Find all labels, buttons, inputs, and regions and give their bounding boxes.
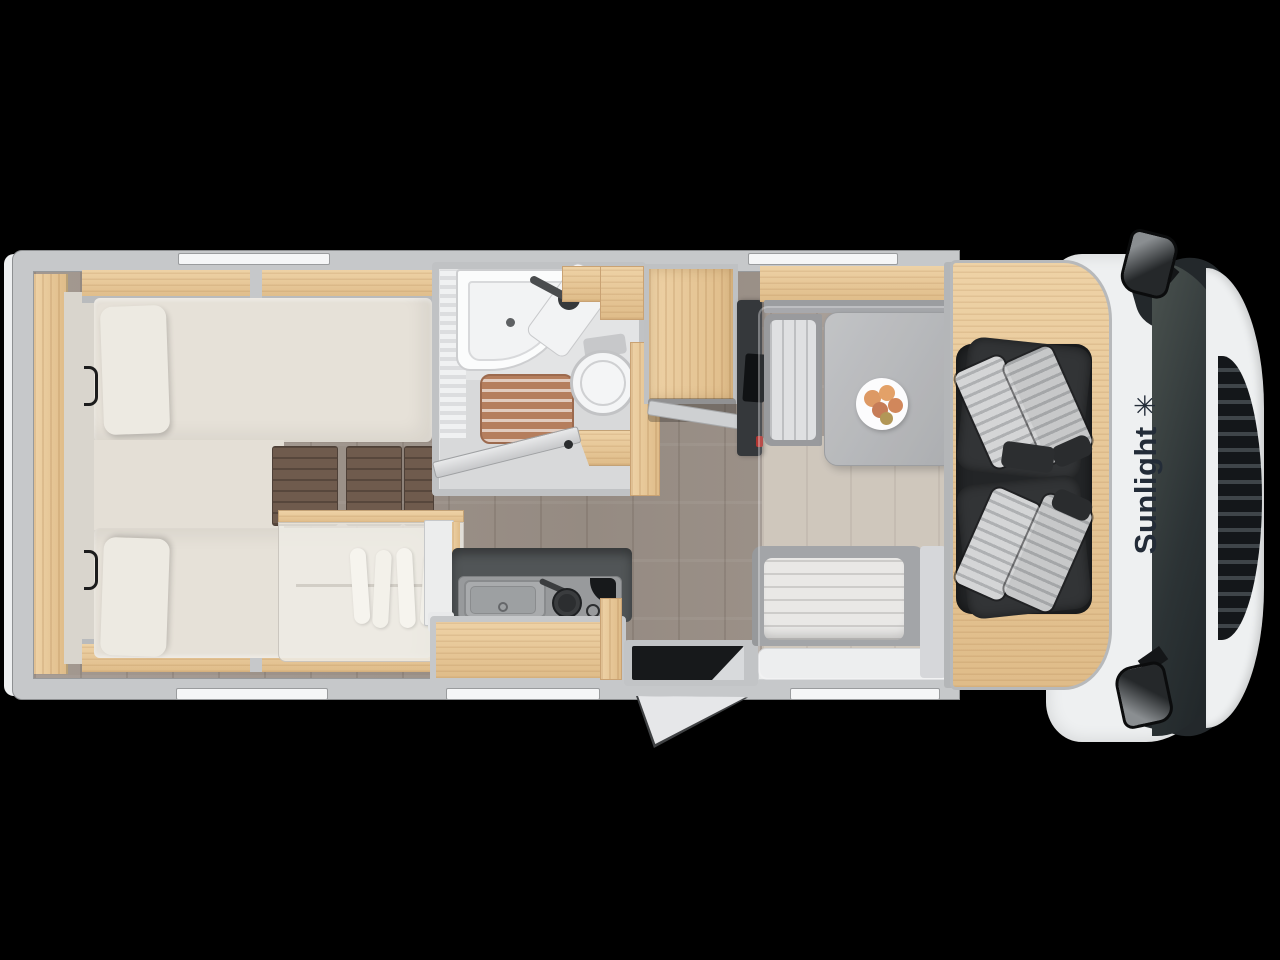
toilet-seat-ring bbox=[580, 360, 626, 406]
sun-star-icon: ✳ bbox=[1132, 394, 1160, 417]
pillow-top-bed bbox=[100, 305, 170, 435]
kitchen-sink-drain bbox=[498, 602, 508, 612]
bed-latch-handle-bottom bbox=[84, 550, 98, 590]
fridge-cabinet bbox=[424, 520, 454, 626]
window-top-dinette bbox=[748, 253, 898, 265]
wardrobe bbox=[644, 264, 738, 404]
kitchen-side-rack bbox=[600, 598, 622, 680]
dropdown-bed-overlay bbox=[758, 306, 968, 680]
window-bottom-rear bbox=[176, 688, 328, 700]
brand-logo-text: Sunlight bbox=[1128, 426, 1164, 554]
hob-burner-large bbox=[552, 588, 582, 618]
rear-shelf bbox=[34, 274, 68, 674]
shelf-top-deep bbox=[600, 266, 644, 320]
window-bottom-kitchen bbox=[446, 688, 600, 700]
dinette-overhead-locker bbox=[760, 266, 962, 302]
entry-door-open-panel bbox=[638, 696, 746, 744]
floorplan-scene: Sunlight ✳ bbox=[0, 0, 1280, 960]
bathroom-door-handle bbox=[564, 440, 573, 449]
pillow-bottom-bed bbox=[100, 537, 170, 657]
brand-logo: Sunlight ✳ bbox=[1124, 352, 1168, 596]
bed-latch-handle-top bbox=[84, 366, 98, 406]
bed-filler-cushion bbox=[94, 440, 284, 530]
window-bottom-bench bbox=[790, 688, 940, 700]
sink-drain bbox=[506, 318, 515, 327]
worktop-extension-flap bbox=[430, 616, 626, 684]
window-top-rear bbox=[178, 253, 330, 265]
